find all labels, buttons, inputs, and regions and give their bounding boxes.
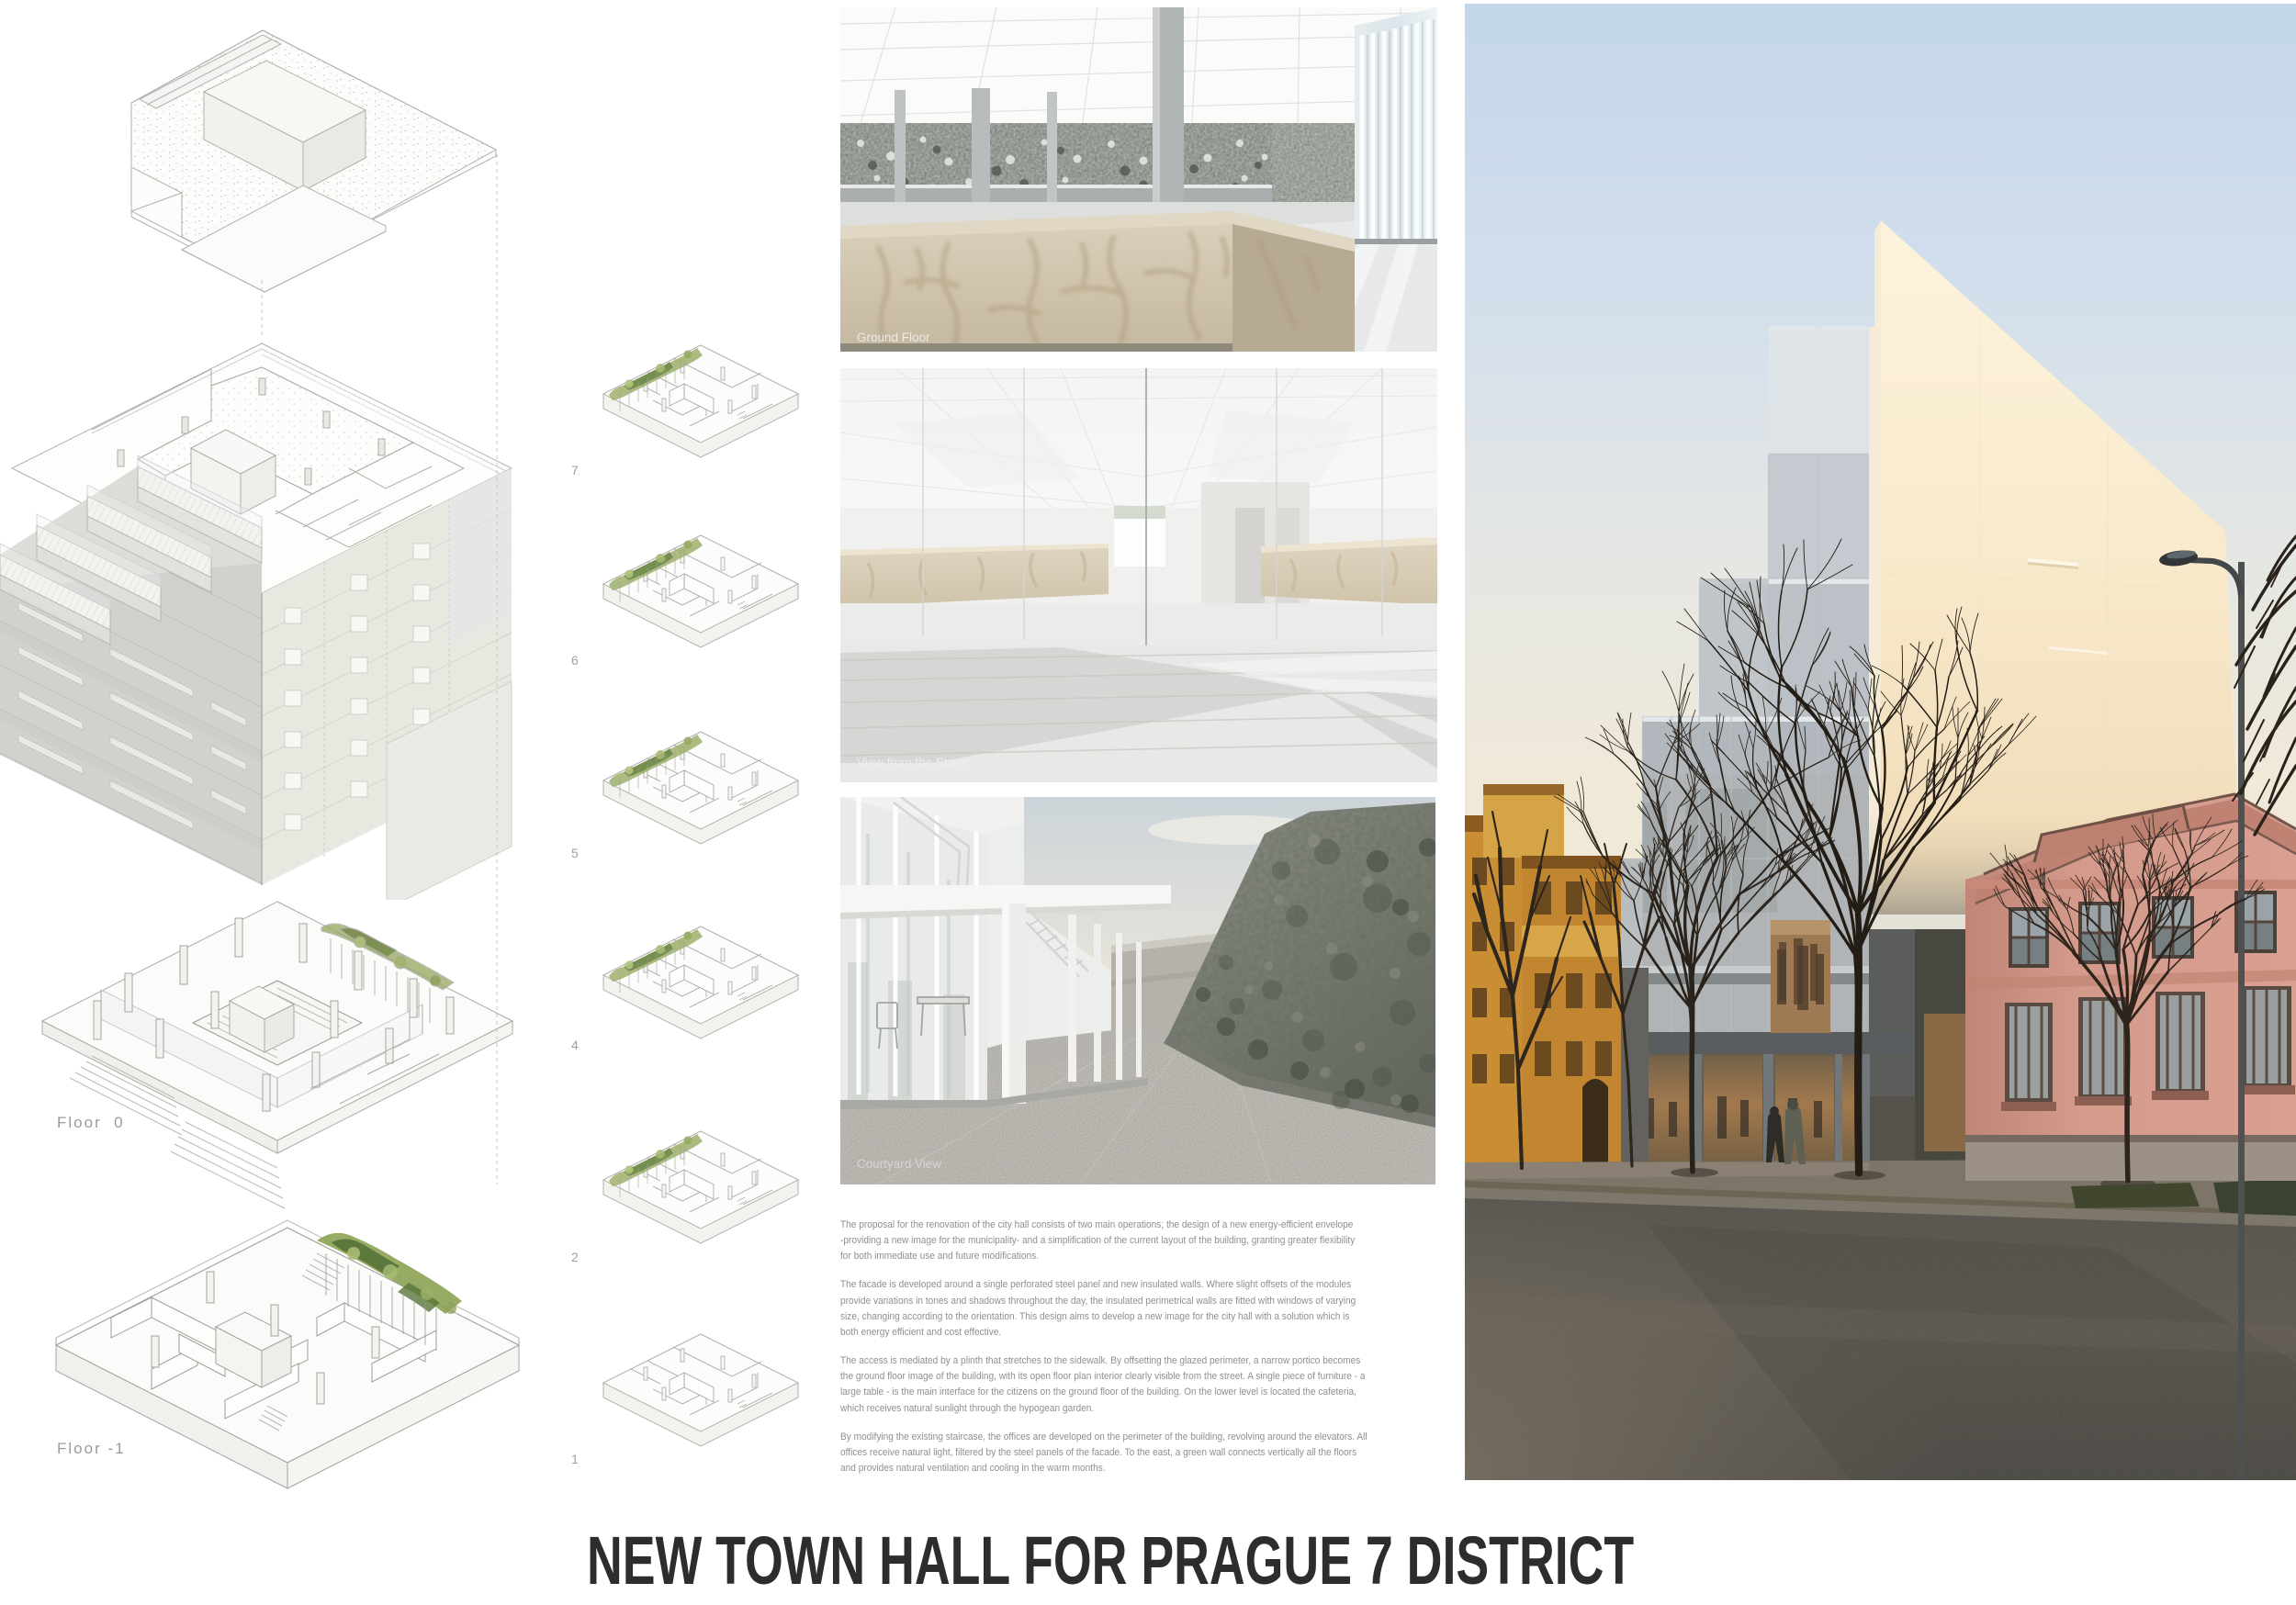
svg-text:Ground Floor: Ground Floor (857, 331, 930, 344)
svg-text:Courtyard View: Courtyard View (857, 1157, 941, 1171)
svg-text:View from the Street: View from the Street (857, 756, 969, 769)
